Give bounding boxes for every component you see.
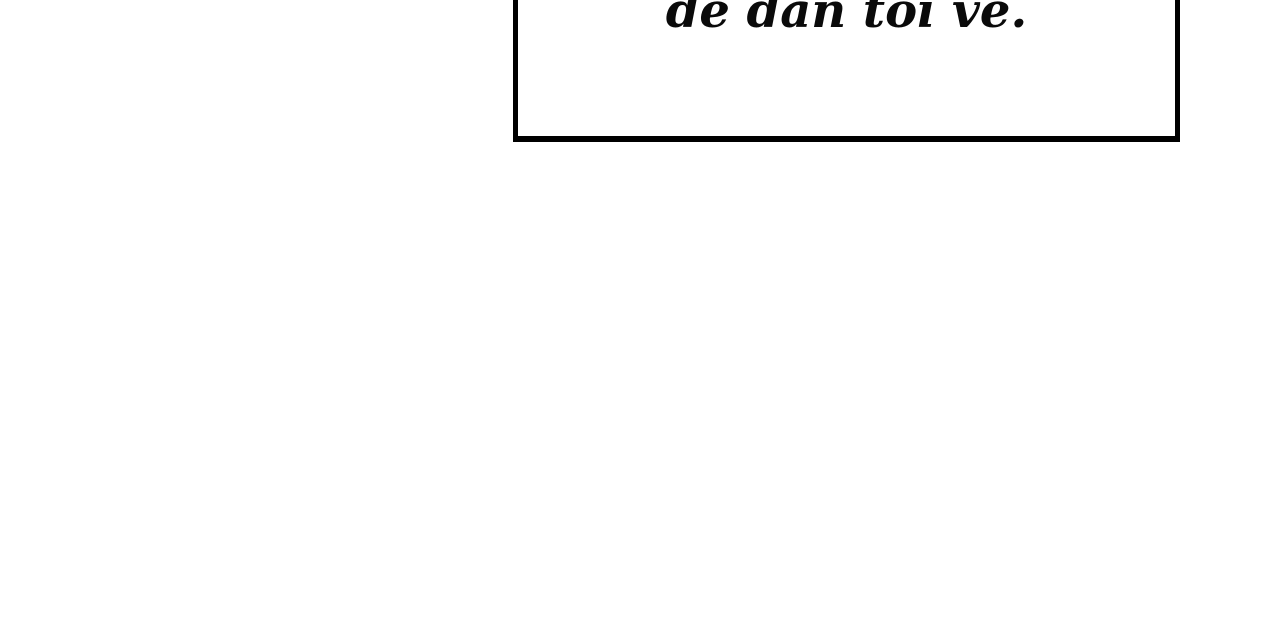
comic-page: để dẫn tôi về. (0, 0, 1280, 640)
caption-text: để dẫn tôi về. (513, 0, 1180, 35)
